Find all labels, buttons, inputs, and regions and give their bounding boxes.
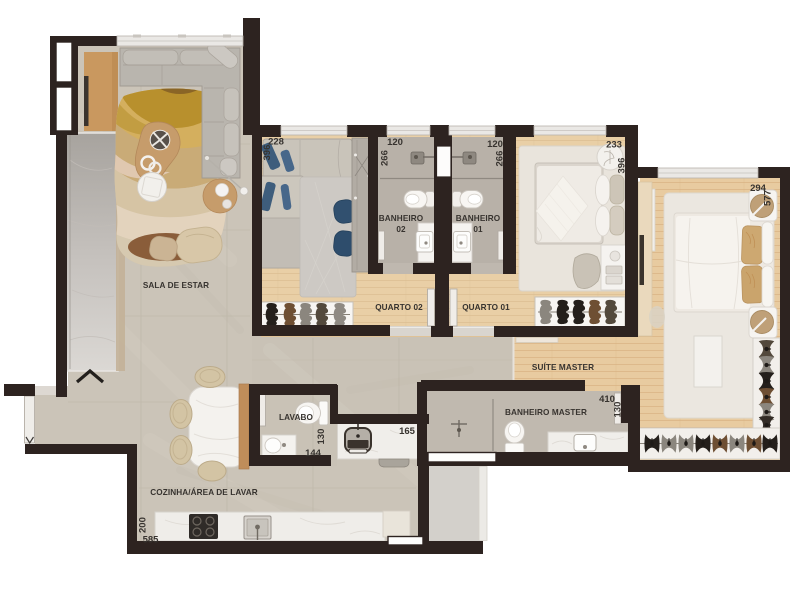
svg-text:266: 266 [380, 150, 391, 166]
svg-text:BANHEIRO: BANHEIRO [456, 214, 501, 223]
svg-text:144: 144 [305, 448, 322, 459]
svg-text:SUÍTE MASTER: SUÍTE MASTER [532, 362, 594, 372]
svg-text:266: 266 [495, 151, 506, 167]
svg-text:BANHEIRO: BANHEIRO [379, 214, 424, 223]
svg-text:130: 130 [316, 429, 327, 445]
svg-text:585: 585 [143, 535, 160, 546]
svg-text:120: 120 [387, 137, 403, 148]
svg-text:QUARTO 02: QUARTO 02 [375, 303, 423, 312]
svg-text:120: 120 [487, 139, 503, 150]
svg-text:200: 200 [138, 517, 149, 533]
svg-text:165: 165 [399, 426, 416, 437]
svg-text:SALA DE ESTAR: SALA DE ESTAR [143, 281, 209, 290]
svg-text:BANHEIRO MASTER: BANHEIRO MASTER [505, 408, 587, 417]
svg-text:LAVABO: LAVABO [279, 413, 313, 422]
svg-text:396: 396 [617, 158, 628, 174]
svg-text:577: 577 [763, 190, 774, 206]
svg-text:130: 130 [613, 402, 624, 418]
svg-text:QUARTO 01: QUARTO 01 [462, 303, 510, 312]
svg-text:01: 01 [473, 225, 483, 234]
svg-text:02: 02 [396, 225, 406, 234]
svg-text:233: 233 [606, 140, 622, 151]
svg-text:396: 396 [262, 145, 273, 161]
svg-text:COZINHA/ÁREA DE LAVAR: COZINHA/ÁREA DE LAVAR [150, 487, 257, 497]
